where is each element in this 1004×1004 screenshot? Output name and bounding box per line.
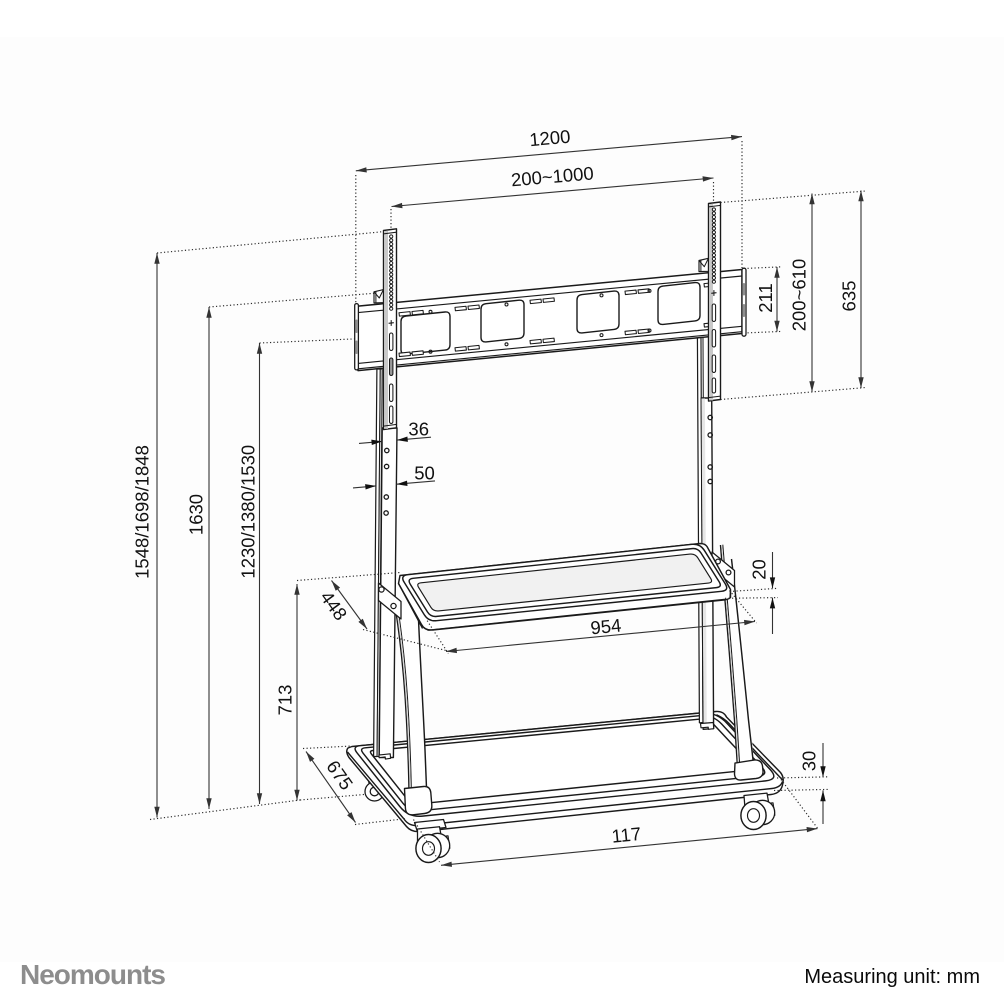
svg-text:1230/1380/1530: 1230/1380/1530 [238,445,259,579]
svg-text:1630: 1630 [185,494,206,535]
svg-text:30: 30 [798,751,819,772]
svg-text:1548/1698/1848: 1548/1698/1848 [131,445,152,579]
svg-text:200~610: 200~610 [789,259,810,332]
svg-text:50: 50 [414,462,435,483]
svg-text:1200: 1200 [528,126,571,151]
svg-text:20: 20 [749,559,770,580]
svg-text:36: 36 [408,418,429,439]
svg-text:117: 117 [611,823,642,847]
svg-text:954: 954 [589,614,622,638]
svg-text:635: 635 [839,281,860,312]
svg-text:713: 713 [274,685,295,716]
svg-text:211: 211 [755,283,776,313]
svg-text:Neomounts: Neomounts [20,959,165,990]
svg-text:Measuring unit: mm: Measuring unit: mm [804,966,980,988]
